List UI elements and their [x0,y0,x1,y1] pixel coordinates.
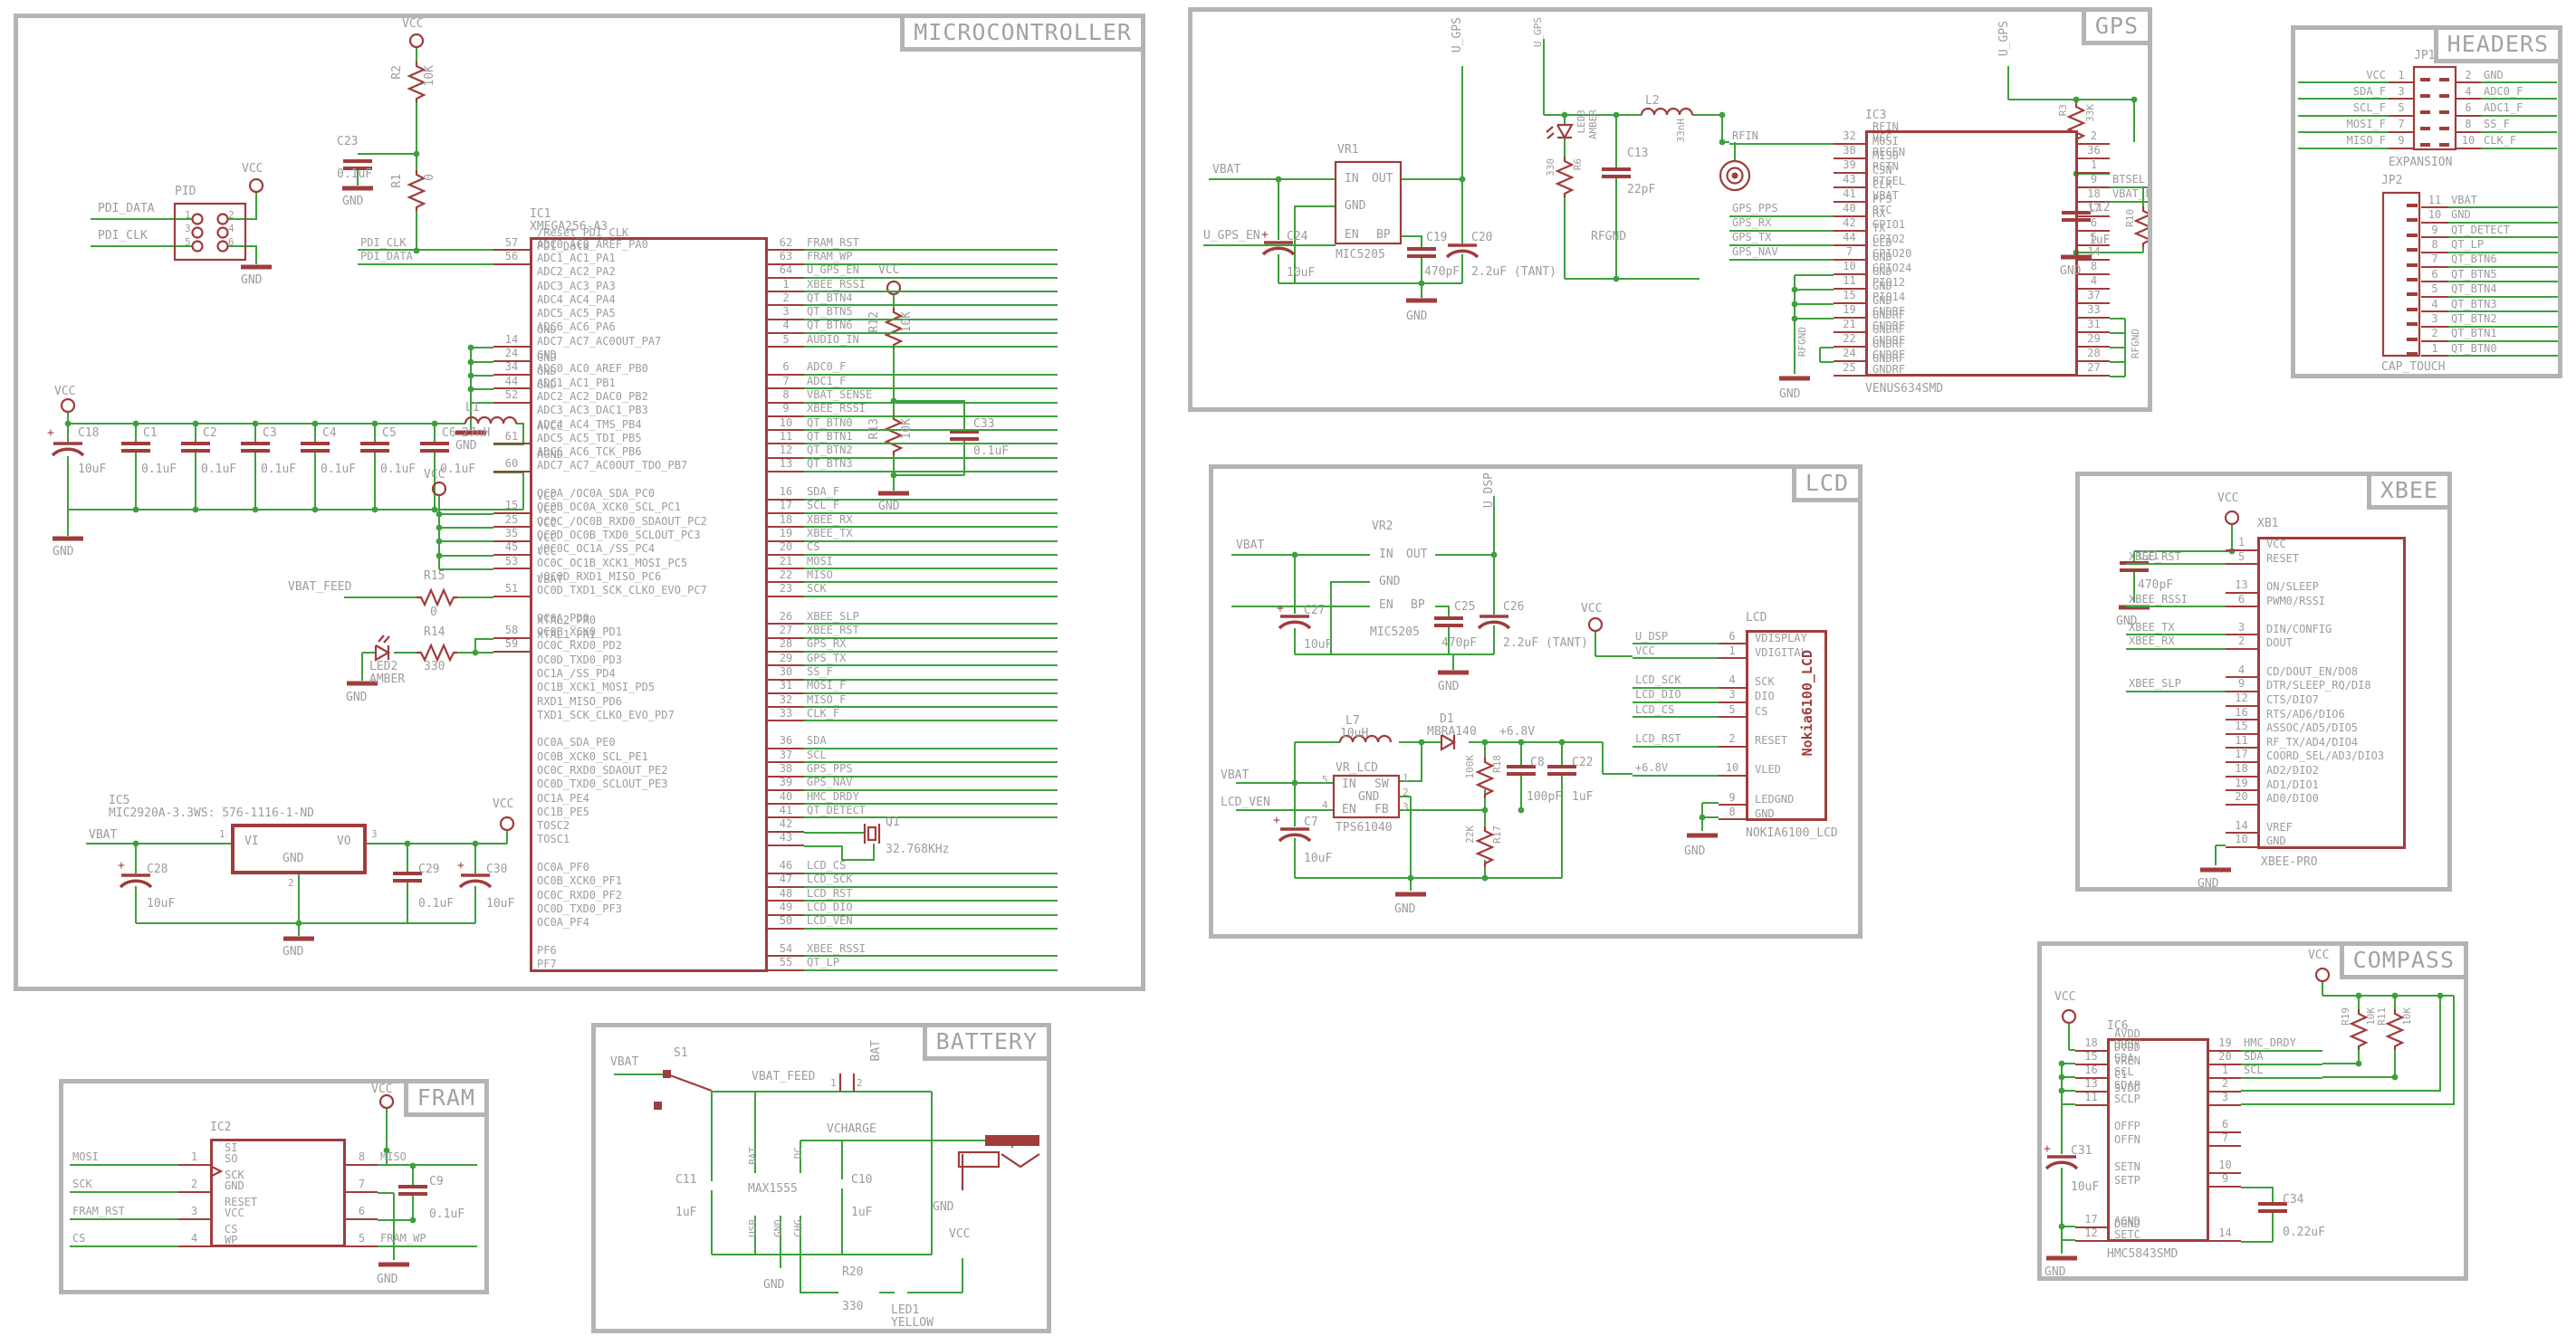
ic1-right-net: QT_BTN0 [804,417,1058,432]
lcd-conn-pin-name: RESET [1746,735,1827,748]
bat-label: BAT [870,1040,883,1061]
vr2-in: IN [1379,549,1393,561]
jp2-pin-row: 3 QT_BTN2 [2421,312,2562,327]
vrlcd-part: TPS61040 [1336,822,1393,835]
net-vbat-feed: VBAT_FEED [752,1071,815,1083]
jp2-pin-row: 6 QT_BTN5 [2421,268,2562,282]
ic1-pin-row [358,721,1058,735]
jp1-right-net: ADC0_F [2481,86,2557,100]
ic5-gnd: GND [282,853,303,865]
gnd-label: GND [1684,845,1705,858]
r15-ref: R15 [424,570,445,583]
ic6-right-net: SCL [2241,1064,2322,1079]
pid-pin-4: 4 [228,224,235,234]
ic1-right-net: QT_DETECT [804,805,1058,819]
c31-plus: + [2044,1143,2051,1156]
ic1-right-num: 5 [768,334,804,348]
ic1-right-net: LCD_RST [804,888,1058,902]
ic1-right-num: 43 [768,832,804,846]
r2-ref: R2 [391,65,404,80]
jp2-pin-row: 2 QT_BTN1 [2421,328,2562,342]
jp2-num: 8 [2421,239,2448,253]
c19-value: 470pF [1424,266,1460,279]
ic3-right-num: 36 [2078,145,2110,159]
ic1-right-net: ADC0_F [804,361,1058,376]
r13-value: 10K [901,418,914,439]
lcd-conn-pin-name: CS [1746,706,1827,719]
ic1-right-net: SCL_F [804,500,1058,514]
ic3-right-num: 14 [2078,246,2110,261]
lcd-conn-part: NOKIA6100_LCD [1746,827,1838,840]
ic5-pin-3: 3 [371,829,378,840]
vr2-part: MIC5205 [1370,626,1420,639]
schematic-page: { "g":{"vcc":"VCC","gnd":"GND","rfgnd":"… [0,0,2576,1336]
ic1-right-num: 13 [768,458,804,472]
vr2-gnd: GND [1379,576,1400,588]
lcd-conn-vertical-name: Nokia6100_LCD [1800,650,1815,756]
ic1-right-net: SDA_F [804,486,1058,501]
ic3-left-net [1729,374,1834,377]
r12-ref: R12 [868,311,881,332]
ic3-right-num: 2 [2078,130,2110,145]
jp1-pin-row: MOSI_F 7 8 SS_F [2298,117,2557,133]
r3-value: 33K [2085,104,2096,122]
gnd-label: GND [377,1274,397,1286]
c12-value: 1uF [2089,234,2110,247]
vcc-label: VCC [2308,950,2329,962]
net-u-gps: U_GPS [1451,17,1464,52]
ic1-right-name: OC0C_RXD0_SDAOUT_PE2 [537,765,761,777]
ic3-left-num: 41 [1834,188,1865,203]
ic3-left-num: 15 [1834,290,1865,304]
c26-ref: C26 [1503,601,1524,614]
c11-value: 1uF [675,1207,696,1219]
max-pin-chg: CHG [793,1219,804,1237]
ic1-right-num: 23 [768,583,804,597]
ic3-left-name: RFIN [1872,121,2071,133]
ic3-left-num: 25 [1834,362,1865,377]
rfgnd-label: RFGND [1797,327,1808,357]
ic6-pin-row: OFFN 7 [2075,1133,2322,1147]
net-vbat: VBAT [1212,164,1240,177]
c34-ref: C34 [2283,1194,2303,1207]
ic1-right-name: OC1A_PE4 [537,793,761,805]
pid-pin-2: 2 [228,210,235,221]
jp1-left-num: 5 [2389,102,2414,117]
lcd-conn-net: +6.8V [1633,762,1719,777]
jp2-num: 2 [2421,328,2448,342]
ic1-pin-row: PF7 55 QT_LP [358,957,1058,970]
jp1-name: EXPANSION [2389,157,2452,169]
vrlcd-pin-5: 5 [1322,775,1328,786]
xb1-pin-rows: 1 VCC XBEE_RST 5 RESET 13 ON/SLEEP XBEE_… [2126,537,2406,848]
ic1-left-name: AVCC [537,421,761,433]
ic2-right-num: 5 [346,1233,378,1247]
jp2-num: 10 [2421,209,2448,224]
c9-ref: C9 [429,1176,444,1188]
c7-value: 10uF [1304,853,1332,865]
jp2-ref: JP2 [2381,175,2402,187]
vr1-bp: BP [1376,229,1391,242]
ic1-right-net: QT_BTN4 [804,292,1058,307]
jp2-net: QT_BTN4 [2448,283,2562,298]
xb1-pin-name: VCC [2257,539,2406,551]
xb1-pin-row: XBEE_RST 5 RESET [2126,551,2406,566]
ic1-right-name: PF7 [537,959,761,970]
ic1-right-num: 28 [768,638,804,653]
jp2-num: 4 [2421,299,2448,313]
ic1-left-name: GND [537,324,761,336]
c31-value: 10uF [2071,1181,2099,1194]
c11-ref: C11 [675,1174,696,1187]
ic1-right-name: TXD1_SCK_CLKO_EVO_PD7 [537,710,761,721]
ic3-left-num: 21 [1834,319,1865,333]
ic1-right-num: 17 [768,500,804,514]
jp2-num: 1 [2421,343,2448,358]
ic1-right-name: ADC5_AC5_PA5 [537,308,761,320]
ic1-right-name: ADC2_AC2_PA2 [537,266,761,278]
lcd-conn-num: 1 [1719,645,1746,660]
c28-ref: C28 [147,864,168,876]
r11-ref: R11 [2377,1007,2388,1026]
lcd-conn-pin-name: VDISPLAY [1746,633,1827,645]
ic1-right-net: FRAM_WP [804,251,1058,265]
xb1-num: 6 [2226,594,2257,608]
c27-plus: + [1277,603,1284,616]
ic1-pin-row: TOSC1 43 [358,833,1058,846]
ic2-left-net: FRAM_RST [70,1206,178,1220]
ic1-right-name: ADC3_AC3_PA3 [537,281,761,292]
vcc-label: VCC [2054,991,2075,1004]
ic1-left-num: 58 [493,625,530,639]
gnd-label: GND [342,196,363,208]
xb1-ref: XB1 [2257,518,2278,530]
jp1-left-net: VCC [2298,70,2389,84]
ic3-right-num: 33 [2078,304,2110,319]
jp2-num: 7 [2421,253,2448,268]
ic3-pin-rows: RFIN 32 RFINVCC 2 38 MOSIREGEN 36 39 MIS… [1729,130,2152,377]
ic1-right-net: U_GPS_EN [804,264,1058,279]
ic1-right-num: 10 [768,417,804,432]
c33-value: 0.1uF [973,445,1009,458]
c6-value: 0.1uF [440,463,475,476]
vrlcd-en: EN [1342,804,1356,816]
c12-ref: C12 [2089,202,2110,215]
lcd-conn-num: 4 [1719,674,1746,689]
ic1-right-net: LCD_CS [804,860,1058,874]
gnd-label: GND [1779,388,1800,401]
ic2-pin-row: MOSI 1 SISO 8 MISO [70,1139,477,1166]
ic1-right-num: 6 [768,361,804,376]
ic1-right-name: ADC7_AC7_AC0OUT_PA7 [537,336,761,348]
jp2-num: 3 [2421,313,2448,328]
ic1-right-num: 12 [768,444,804,459]
ic2-pin-row: CS 4 CSWP 5 FRAM_WP [70,1220,477,1247]
ic2-right-num: 7 [346,1179,378,1193]
ic3-left-num: 38 [1834,145,1865,159]
ic1-right-net: XBEE_RSSI [804,943,1058,958]
ic1-right-num: 55 [768,957,804,971]
jp2-pin-row: 8 QT_LP [2421,238,2562,253]
xb1-num: 14 [2226,820,2257,835]
xb1-num: 2 [2226,635,2257,650]
ic1-right-net: XBEE_RX [804,514,1058,529]
ic1-left-num: 24 [493,348,530,362]
lcd-conn-num: 2 [1719,733,1746,748]
ic1-right-net: MISO_F [804,694,1058,709]
ic1-pin-row: OC0A_SDA_PE0 36 SDA [358,736,1058,749]
ic6-right-name: SETC [2114,1229,2202,1241]
ic1-left-net: PDI_CLK [358,237,493,252]
pid-pin-3: 3 [185,224,191,234]
lcd-conn-num: 6 [1719,631,1746,645]
led2-color: AMBER [369,673,405,686]
section-headers: HEADERS JP1 VCC 1 2 GND SDA_F 3 4 ADC0_F… [2291,25,2562,378]
ic1-right-name: OC0C_OC1B_XCK1_MOSI_PC5 [537,558,761,569]
ic6-pin-row: SETN 10 [2075,1160,2322,1174]
ic1-right-num: 20 [768,541,804,556]
ic1-right-net: GPS_TX [804,653,1058,667]
c8-ref: C8 [1530,757,1545,769]
jp1-left-num: 9 [2389,135,2414,149]
c27-value: 10uF [1304,639,1332,652]
ic1-right-name: TOSC2 [537,820,761,832]
ic2-right-net: MISO [378,1151,477,1166]
ic3-left-num: 42 [1834,217,1865,232]
ic1-pin-row: PDI_DATA 56 PDI_DataADC1_AC1_PA1 63 FRAM… [358,251,1058,264]
xb1-pin-row: 13 ON/SLEEP [2126,579,2406,594]
jp1-pin-row: MISO_F 9 10 CLK_F [2298,133,2557,149]
xb1-pin-row: 1 VCC [2126,537,2406,551]
jp1-right-num: 10 [2456,135,2481,149]
jp1-right-num: 2 [2456,70,2481,84]
lcd-conn-num: 10 [1719,762,1746,777]
lcd-conn-net: U_DSP [1633,631,1719,645]
r10-ref: R10 [2125,209,2136,227]
ic1-right-num: 54 [768,943,804,958]
ic1-right-net: MOSI_F [804,680,1058,694]
xb1-pin-name: VREF [2257,822,2406,835]
ic1-right-net: GPS_RX [804,638,1058,653]
ic1-right-num: 7 [768,376,804,390]
c28-plus: + [118,860,125,873]
xb1-pin-row: 4 CD/DOUT_EN/DO8 [2126,664,2406,679]
bat-pin-2: 2 [857,1078,863,1089]
ic1-right-num: 40 [768,791,804,806]
ic1-pin-row: OC1B_XCK1_MOSI_PD5 31 MOSI_F [358,681,1058,694]
ic1-right-net: QT_BTN5 [804,306,1058,320]
xb1-num: 16 [2226,707,2257,721]
ic1-left-name: VCC [537,546,761,558]
gnd-label: GND [933,1201,953,1214]
jp2-net: QT_BTN2 [2448,313,2562,328]
lcd-conn-pin-row: 8 GND [1633,806,1827,820]
ic1-right-name: OC0B_XCK0_PF1 [537,875,761,887]
xb1-pin-name: CD/DOUT_EN/DO8 [2257,666,2406,679]
ic1-pin-row: 59 XTAL1_PR1OC0C_RXD0_PD2 28 GPS_RX [358,639,1058,653]
ic1-pin-row [358,597,1058,611]
l2-ref: L2 [1645,95,1660,108]
section-compass: COMPASS VCC VCC IC6 18 AVDDDRDY 19 HMC_D… [2037,941,2468,1281]
ic1-pin-row: OC0B_XCK0_PF1 47 LCD_SCK [358,874,1058,888]
vcc-label: VCC [878,264,899,277]
ic1-right-name: ADC2_AC2_DAC0_PB2 [537,391,761,403]
jp1-pin-row: VCC 1 2 GND [2298,67,2557,83]
ic3-pin-row: 25 GNDRFGNDRF 27 [1729,362,2152,377]
ic1-pin-row: OC0D_TXD0_PF3 49 LCD_DIO [358,902,1058,915]
vcc-label: VCC [1581,603,1602,616]
c18-plus: + [47,427,54,440]
ic1-pin-row: OC1B_PE5 41 QT_DETECT [358,805,1058,818]
ic1-right-name: OC1A_/SS_PD4 [537,668,761,680]
c23-value: 0.1uF [337,168,372,181]
ic1-right-name: OC0D_TXD0_SCLOUT_PE3 [537,778,761,790]
gnd-label: GND [1406,310,1427,323]
ic1-right-name: OC0B_XCK0_SCL_PE1 [537,751,761,763]
lcd-conn-pin-name: VDIGITAL [1746,647,1827,660]
ic1-left-net: PDI_DATA [358,251,493,265]
ic1-right-net: QT_BTN3 [804,458,1058,472]
c4-ref: C4 [322,427,337,440]
xb1-pin-name: DOUT [2257,637,2406,650]
ic6-pin-rows: 18 AVDDDRDY 19 HMC_DRDY 15 DVDDSDA 20 SD… [2075,1038,2322,1242]
vrlcd-ref: VR_LCD [1336,762,1378,775]
xb1-pin-row [2126,650,2406,664]
ic6-pin-row [2075,1106,2322,1120]
ic3-right-num: 31 [2078,319,2110,333]
c24-value: 10uF [1287,267,1315,280]
ic1-pin-row: TXD1_SCK_CLKO_EVO_PD7 33 CLK_F [358,708,1058,721]
xb1-net: XBEE_TX [2126,622,2226,636]
r18-ref: R18 [1492,755,1503,773]
net-u-gps: U_GPS [1998,21,2011,56]
ic1-right-num: 62 [768,237,804,252]
ic6-right-num: 7 [2209,1132,2241,1147]
jp2-num: 6 [2421,269,2448,283]
ic1-left-name: VCC [537,504,761,516]
c1-value: 0.1uF [141,463,177,476]
ic6-right-name: OFFN [2114,1134,2202,1146]
ic1-left-num: 53 [493,556,530,570]
max-pin-usb: USB [748,1219,759,1237]
jp1-left-num: 7 [2389,119,2414,133]
ic1-right-num: 16 [768,486,804,501]
jp1-right-net: GND [2481,70,2557,84]
ic3-right-num: 4 [2078,275,2110,290]
xb1-pin-row: 14 VREF [2126,820,2406,835]
jp2-net: QT_BTN3 [2448,299,2562,313]
ic1-pin-row: 51 VBATOC0D_TXD1_SCK_CLKO_EVO_PC7 23 SCK [358,583,1058,596]
section-lcd: LCD VBAT VR2 IN OUT GND EN BP MIC5205 + … [1209,464,1863,939]
ic1-right-name: PF6 [537,945,761,957]
xb1-pin-row: XBEE_TX 3 DIN/CONFIG [2126,622,2406,636]
lcd-conn-net [1633,817,1719,820]
ic1-right-net: FRAM_RST [804,237,1058,252]
jp1-left-net: MOSI_F [2298,119,2389,133]
jp1-ref: JP1 [2414,50,2435,62]
ic3-left-num: 32 [1834,130,1865,145]
net-vbat: VBAT [610,1056,638,1069]
ic1-right-num: 21 [768,556,804,570]
lcd-conn-pin-name: DIO [1746,691,1827,703]
ic1-pin-row: OC1A_/SS_PD4 30 SS_F [358,666,1058,680]
ic1-right-net: SS_F [804,666,1058,681]
xb1-pin-row: 17 COORD_SEL/AD3/DIO3 [2126,749,2406,763]
jp1-pin-rows: VCC 1 2 GND SDA_F 3 4 ADC0_F SCL_F 5 6 A… [2298,67,2557,149]
xb1-pin-row: 15 ASSOC/AD5/DIO5 [2126,720,2406,735]
ic1-pin-row: ADC3_AC3_PA3 1 XBEE_RSSI [358,279,1058,292]
section-battery: BATTERY VBAT S1 VBAT_FEED BAT 1 2 MAX155… [591,1023,1051,1333]
jp2-pin-row: 9 QT_DETECT [2421,224,2562,238]
c3-ref: C3 [263,427,277,440]
ic1-right-net: MISO [804,569,1058,584]
net-vcharge: VCHARGE [827,1123,876,1136]
xb1-pin-name: GND [2257,835,2406,848]
xb1-pin-row [2126,806,2406,820]
ic3-right-net: BTSEL [2110,174,2152,188]
max-pin-gnd: GND [773,1219,784,1237]
jp2-net: QT_DETECT [2448,224,2562,239]
lcd-conn-pin-row: LCD_SCK 4 SCK [1633,674,1827,689]
xb1-num: 4 [2226,664,2257,679]
q1-ref: Q1 [886,816,900,829]
ic1-right-net: QT_BTN2 [804,444,1058,459]
vr1-part: MIC5205 [1336,249,1385,262]
ic1-pin-row: OC0B_XCK0_SCL_PE1 37 SCL [358,749,1058,763]
ic3-right-num: 6 [2078,217,2110,232]
xb1-pin-name: COORD_SEL/AD3/DIO3 [2257,750,2406,763]
ic1-right-num: 11 [768,431,804,445]
jp2-pin-row: 7 QT_BTN6 [2421,253,2562,268]
ic5-vi: VI [244,835,259,848]
c2-ref: C2 [203,427,217,440]
ic1-left-num: 56 [493,251,530,265]
lcd-conn-num: 8 [1719,806,1746,821]
ic1-left-num: 61 [493,431,530,445]
jp2-pin-row: 10 GND [2421,208,2562,223]
ic1-right-name: OC0D_TXD1_SCK_CLKO_EVO_PC7 [537,585,761,596]
xb1-num: 12 [2226,692,2257,707]
ic1-right-net: XBEE_RSSI [804,403,1058,417]
jp2-pin-row: 4 QT_BTN3 [2421,298,2562,312]
r17-value: 22K [1465,825,1476,844]
xb1-pin-name: RESET [2257,553,2406,566]
r10-value: 10K [2150,209,2152,227]
ic1-right-net: QT_LP [804,957,1058,971]
r14-ref: R14 [424,626,445,639]
rfgnd-label: RFGND [2131,329,2141,358]
net-pdi-clk: PDI_CLK [98,230,148,243]
jp1-left-net: MISO_F [2298,135,2389,149]
jp1-right-num: 6 [2456,102,2481,117]
c13-value: 22pF [1627,184,1655,196]
xb1-pin-name: AD0/DIO0 [2257,793,2406,806]
xb1-num: 1 [2226,537,2257,551]
vrlcd-pin-2: 2 [1403,787,1409,798]
c27-ref: C27 [1304,605,1325,617]
s1-ref: S1 [674,1047,688,1060]
xb1-num: 5 [2226,551,2257,566]
xb1-pin-row: 12 CTS/DIO7 [2126,692,2406,707]
c1-ref: C1 [143,427,158,440]
ic1-right-name: OC1B_PE5 [537,806,761,818]
ic1-left-num: 14 [493,334,530,348]
lcd-conn-net: LCD_DIO [1633,689,1719,703]
xb1-num: 3 [2226,622,2257,636]
l1-ref: L1 [465,402,480,415]
lcd-conn-net: VCC [1633,645,1719,660]
ic2-left-net: CS [70,1233,178,1247]
